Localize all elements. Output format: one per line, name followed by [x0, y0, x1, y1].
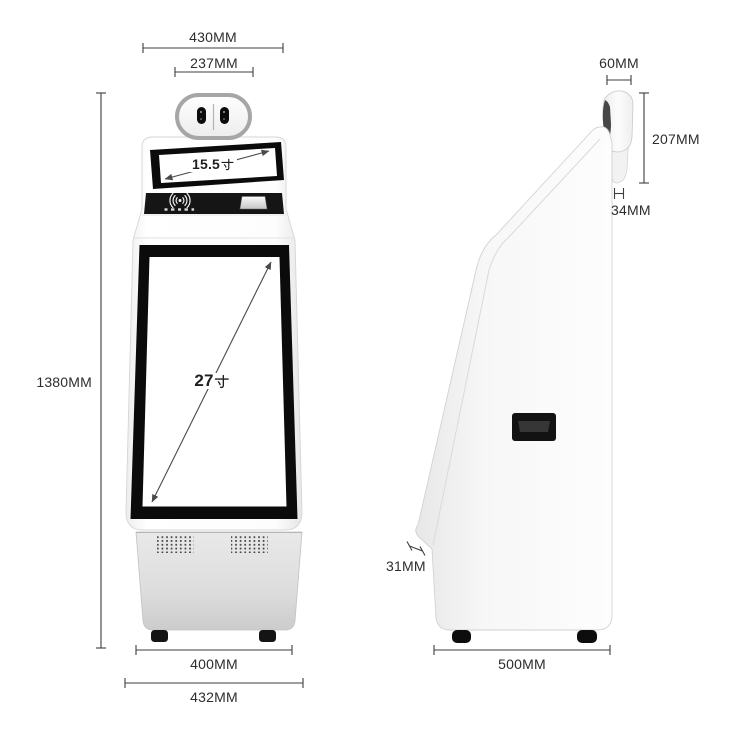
- inch-cn-unit-glyph: [221, 158, 234, 171]
- side-foot-back: [577, 630, 597, 643]
- camera-module: [177, 95, 250, 138]
- vent-grille-left: [157, 536, 194, 553]
- front-view: [96, 43, 303, 688]
- dim-500: [434, 645, 610, 655]
- dim-31: [407, 542, 425, 556]
- dim-400: [136, 645, 292, 655]
- dim-label-head-width: 60MM: [599, 55, 639, 71]
- camera-lens-right: [220, 107, 229, 124]
- dim-label-top-width: 430MM: [189, 29, 237, 45]
- main-screen-size-label: 27: [191, 373, 232, 389]
- dim-label-camera-width: 237MM: [190, 55, 238, 71]
- dim-label-mount-width: 34MM: [611, 202, 651, 218]
- nfc-panel: [144, 193, 284, 214]
- dim-60: [607, 75, 631, 85]
- front-foot-left: [151, 630, 168, 642]
- side-body: [416, 127, 612, 630]
- dim-1380: [96, 93, 106, 648]
- side-foot-front: [452, 630, 471, 643]
- dim-label-base-width: 400MM: [190, 656, 238, 672]
- side-slot: [512, 413, 556, 441]
- diagram-artwork: [0, 0, 750, 750]
- front-foot-right: [259, 630, 276, 642]
- dim-34: [615, 188, 624, 199]
- top-screen-size-value: 15.5: [192, 156, 220, 172]
- main-screen-size-value: 27: [194, 373, 213, 389]
- vent-grille-right: [231, 536, 268, 553]
- receipt-slot: [240, 197, 267, 210]
- inch-cn-unit-glyph: [215, 374, 230, 389]
- dim-432: [125, 678, 303, 688]
- side-view: [407, 75, 649, 655]
- kiosk-dimension-diagram: 430MM 237MM 1380MM 400MM 432MM 15.5 27 6…: [0, 0, 750, 750]
- camera-lens-left: [197, 107, 206, 124]
- top-screen-size-label: 15.5: [189, 156, 237, 172]
- dim-207: [639, 93, 649, 183]
- dim-label-total-height: 1380MM: [20, 374, 92, 390]
- dim-label-base-depth: 500MM: [498, 656, 546, 672]
- dim-label-overall-width: 432MM: [190, 689, 238, 705]
- dim-label-panel-thickness: 31MM: [386, 558, 426, 574]
- base-cabinet: [136, 532, 302, 642]
- dim-label-head-height: 207MM: [652, 131, 700, 147]
